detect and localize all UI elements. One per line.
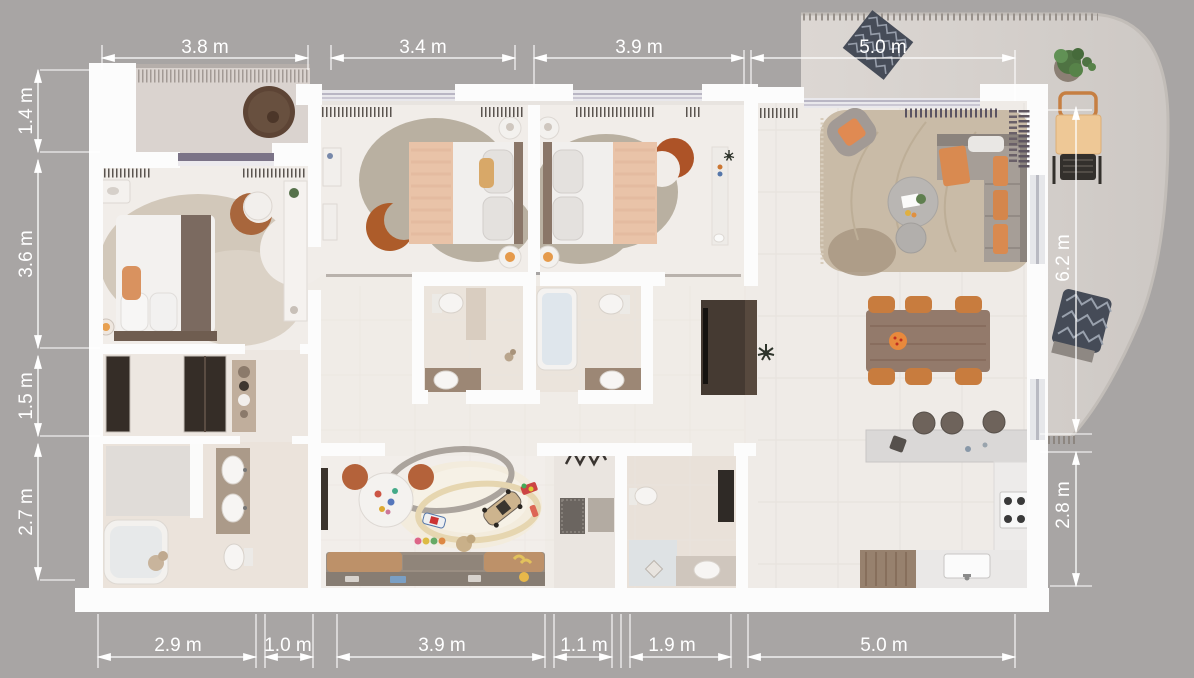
svg-text:3.9 m: 3.9 m — [418, 635, 466, 656]
svg-text:1.5 m: 1.5 m — [16, 372, 37, 420]
svg-text:3.9 m: 3.9 m — [615, 37, 663, 58]
svg-text:1.4 m: 1.4 m — [16, 87, 37, 135]
svg-text:3.4 m: 3.4 m — [399, 37, 447, 58]
svg-text:1.0 m: 1.0 m — [264, 635, 312, 656]
svg-text:5.0 m: 5.0 m — [859, 37, 907, 58]
svg-text:1.1 m: 1.1 m — [560, 635, 608, 656]
svg-text:2.7 m: 2.7 m — [16, 488, 37, 536]
svg-text:2.9 m: 2.9 m — [154, 635, 202, 656]
svg-text:6.2 m: 6.2 m — [1053, 234, 1074, 282]
svg-text:1.9 m: 1.9 m — [648, 635, 696, 656]
svg-text:5.0 m: 5.0 m — [860, 635, 908, 656]
svg-text:3.6 m: 3.6 m — [16, 230, 37, 278]
svg-text:3.8 m: 3.8 m — [181, 37, 229, 58]
svg-text:2.8 m: 2.8 m — [1053, 481, 1074, 529]
